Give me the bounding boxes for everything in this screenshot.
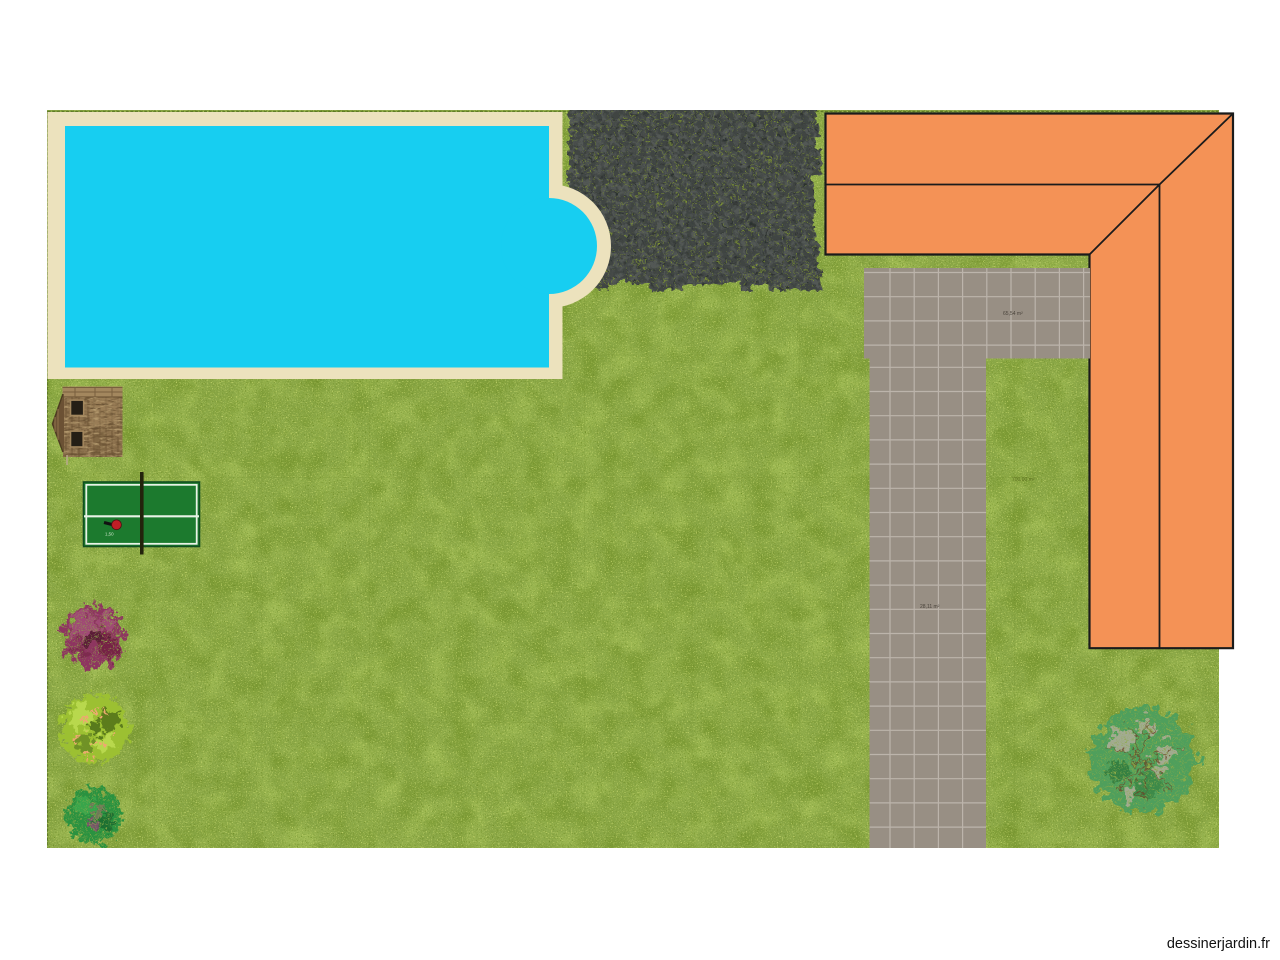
svg-text:1,50: 1,50 xyxy=(105,532,114,537)
svg-text:28,11 m²: 28,11 m² xyxy=(920,604,940,610)
svg-text:dessinerjardin.fr: dessinerjardin.fr xyxy=(1167,936,1270,952)
svg-text:700,00 m²: 700,00 m² xyxy=(1012,477,1035,483)
svg-text:65,54 m²: 65,54 m² xyxy=(1003,311,1023,317)
